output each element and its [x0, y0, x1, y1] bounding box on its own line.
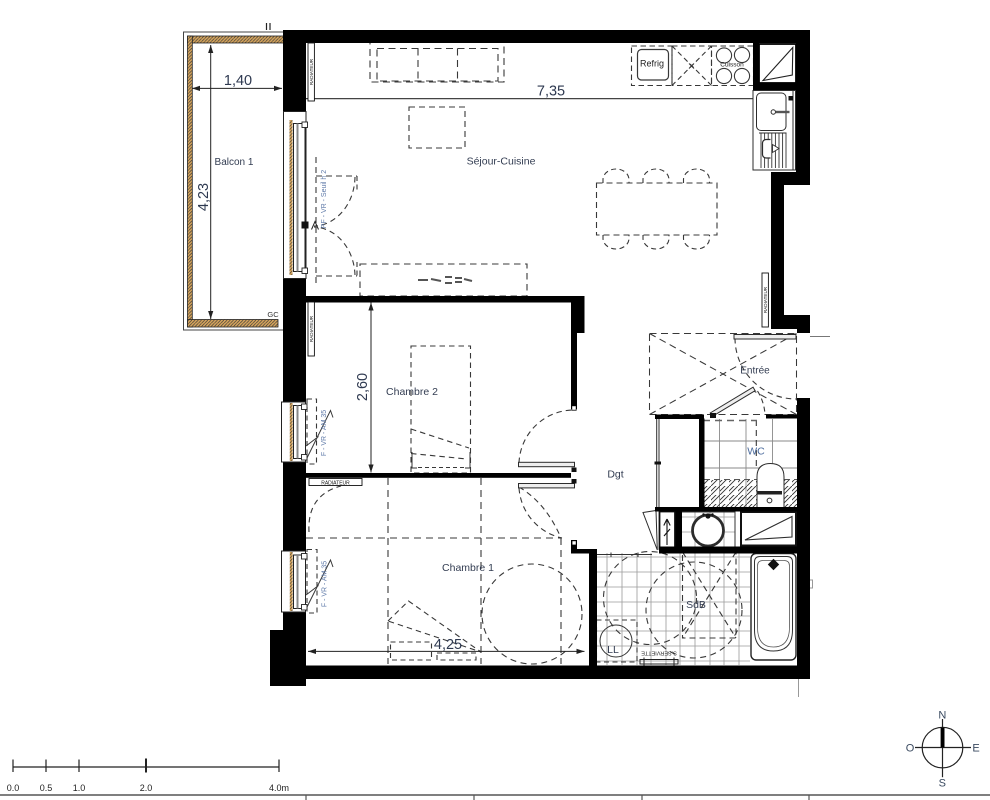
svg-text:N: N	[938, 709, 946, 721]
svg-text:Balcon 1: Balcon 1	[215, 157, 254, 168]
svg-text:GC: GC	[267, 310, 279, 319]
svg-text:0.0: 0.0	[7, 783, 20, 793]
svg-text:2,60: 2,60	[355, 373, 371, 401]
svg-text:O: O	[906, 743, 915, 755]
svg-text:4,23: 4,23	[196, 183, 212, 211]
svg-text:RADIATEUR: RADIATEUR	[309, 58, 314, 85]
svg-text:0.5: 0.5	[40, 783, 53, 793]
svg-text:WC: WC	[747, 446, 765, 458]
svg-text:RADIATEUR: RADIATEUR	[321, 480, 350, 486]
svg-text:Dgt: Dgt	[607, 469, 623, 481]
svg-text:S: S	[939, 777, 946, 789]
svg-text:F - VR - AM 35: F - VR - AM 35	[322, 561, 329, 607]
svg-text:LL: LL	[607, 644, 619, 656]
svg-text:2.0: 2.0	[140, 783, 153, 793]
svg-text:4.0m: 4.0m	[269, 783, 289, 793]
svg-text:Cuisson: Cuisson	[720, 62, 744, 69]
svg-text:1,40: 1,40	[224, 73, 252, 89]
svg-text:7,35: 7,35	[537, 84, 565, 100]
svg-text:1.0: 1.0	[73, 783, 86, 793]
svg-text:Entrée: Entrée	[740, 366, 770, 377]
svg-text:Chambre 1: Chambre 1	[442, 562, 494, 574]
svg-text:F - VR - AM 35: F - VR - AM 35	[321, 410, 328, 456]
svg-text:4,25: 4,25	[434, 637, 462, 653]
svg-text:RADIATEUR: RADIATEUR	[309, 315, 314, 342]
svg-text:PF - VR - Seuil h 2: PF - VR - Seuil h 2	[321, 170, 328, 228]
svg-text:S.SERVIETTE: S.SERVIETTE	[641, 650, 677, 656]
svg-text:Chambre 2: Chambre 2	[386, 386, 438, 398]
svg-text:Refrig: Refrig	[640, 59, 664, 69]
svg-text:Séjour-Cuisine: Séjour-Cuisine	[467, 156, 536, 168]
svg-text:E: E	[972, 743, 979, 755]
svg-text:SdB: SdB	[686, 599, 706, 611]
svg-text:RADIATEUR: RADIATEUR	[763, 286, 768, 313]
